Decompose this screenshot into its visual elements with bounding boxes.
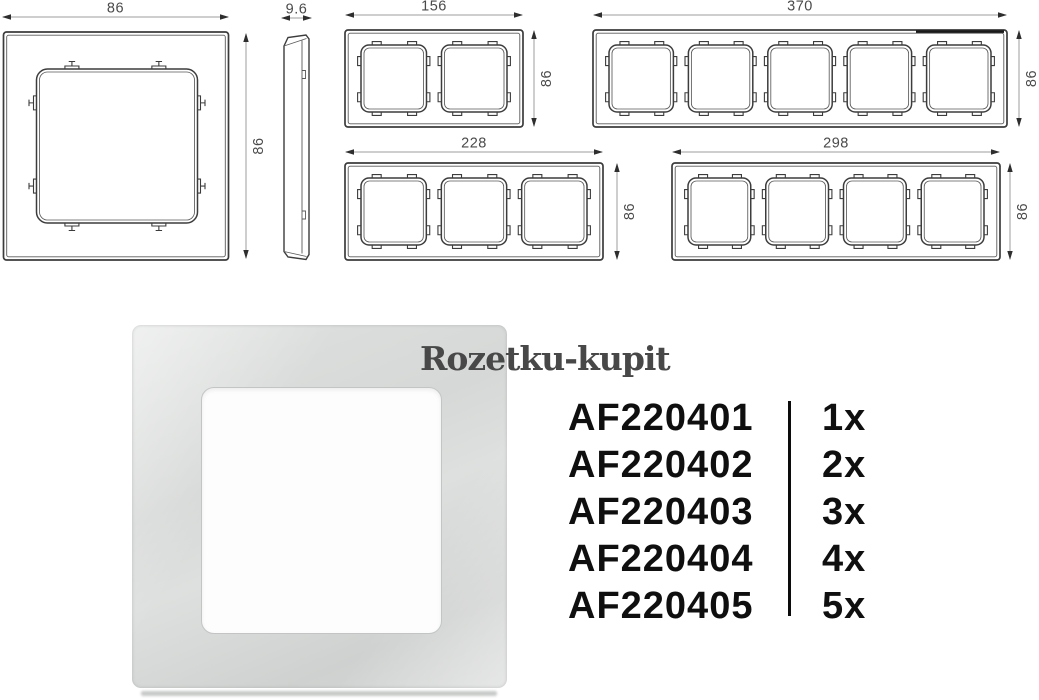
mounting-clip bbox=[923, 57, 926, 66]
table-divider bbox=[788, 401, 791, 616]
mounting-clip bbox=[358, 190, 361, 199]
mounting-clip bbox=[932, 175, 941, 178]
mounting-clip bbox=[427, 226, 430, 235]
product-qty: 3x bbox=[822, 491, 866, 534]
dim-height-frame-1gang: 86 bbox=[251, 137, 267, 154]
mounting-clip bbox=[372, 246, 381, 249]
mounting-clip bbox=[844, 93, 847, 102]
mounting-clip bbox=[568, 175, 577, 178]
mounting-clip bbox=[620, 113, 629, 116]
frame-top-shade bbox=[916, 30, 1004, 33]
mounting-clip bbox=[408, 113, 417, 116]
mounting-clip bbox=[888, 246, 897, 249]
mounting-clip bbox=[840, 226, 843, 235]
mounting-clip bbox=[972, 42, 981, 45]
table-row: AF2204033x bbox=[568, 489, 866, 536]
mounting-clip bbox=[655, 42, 664, 45]
table-row: AF2204011x bbox=[568, 395, 866, 442]
mounting-clip bbox=[685, 57, 688, 66]
mounting-clip bbox=[152, 62, 166, 69]
drawing-side-view: 9.6 bbox=[281, 2, 312, 260]
mounting-clip bbox=[907, 190, 910, 199]
mounting-clip bbox=[568, 246, 577, 249]
mounting-clip bbox=[992, 93, 995, 102]
mounting-clip bbox=[674, 57, 677, 66]
mounting-clip bbox=[620, 42, 629, 45]
mounting-clip bbox=[372, 42, 381, 45]
drawing-frame-1gang: 8686 bbox=[2, 1, 267, 261]
mounting-clip bbox=[699, 246, 708, 249]
dim-height-frame-3gang: 86 bbox=[622, 203, 638, 220]
mounting-clip bbox=[985, 190, 988, 199]
mounting-clip bbox=[508, 57, 511, 66]
table-row: AF2204044x bbox=[568, 536, 866, 583]
mounting-clip bbox=[152, 224, 166, 231]
mounting-clip bbox=[734, 113, 743, 116]
mounting-clip bbox=[358, 226, 361, 235]
mounting-clip bbox=[932, 246, 941, 249]
product-table: AF2204011xAF2204022xAF2204033xAF2204044x… bbox=[568, 395, 866, 630]
dim-depth-side-view: 9.6 bbox=[286, 2, 308, 18]
mounting-clip bbox=[408, 42, 417, 45]
mounting-clip bbox=[858, 42, 867, 45]
mounting-clip bbox=[358, 57, 361, 66]
mounting-clip bbox=[938, 42, 947, 45]
mounting-clip bbox=[488, 175, 497, 178]
mounting-clip bbox=[814, 113, 823, 116]
mounting-clip bbox=[732, 175, 741, 178]
mounting-clip bbox=[762, 226, 765, 235]
mounting-clip bbox=[762, 190, 765, 199]
mounting-clip bbox=[854, 175, 863, 178]
mounting-clip bbox=[453, 175, 462, 178]
product-qty: 1x bbox=[822, 397, 866, 440]
product-qty: 4x bbox=[822, 538, 866, 581]
mounting-clip bbox=[588, 226, 591, 235]
mounting-clip bbox=[29, 96, 36, 110]
mounting-clip bbox=[655, 113, 664, 116]
mounting-clip bbox=[438, 190, 441, 199]
mounting-clip bbox=[606, 57, 609, 66]
mounting-clip bbox=[372, 113, 381, 116]
product-code: AF220401 bbox=[568, 397, 789, 440]
mounting-clip bbox=[438, 226, 441, 235]
mounting-clip bbox=[358, 93, 361, 102]
mounting-clip bbox=[734, 42, 743, 45]
mounting-clip bbox=[427, 57, 430, 66]
mounting-clip bbox=[699, 113, 708, 116]
mounting-clip bbox=[29, 179, 36, 193]
table-row: AF2204022x bbox=[568, 442, 866, 489]
mounting-clip bbox=[907, 226, 910, 235]
product-code: AF220405 bbox=[568, 585, 789, 628]
mounting-clip bbox=[764, 93, 767, 102]
mounting-clip bbox=[438, 93, 441, 102]
mounting-clip bbox=[992, 57, 995, 66]
mounting-clip bbox=[65, 224, 79, 231]
mounting-clip bbox=[751, 226, 754, 235]
table-row: AF2204055x bbox=[568, 583, 866, 630]
mounting-clip bbox=[814, 42, 823, 45]
mounting-clip bbox=[938, 113, 947, 116]
mounting-clip bbox=[751, 190, 754, 199]
product-sheet: 8686156863708622886298869.6 Rozetku-kupi… bbox=[0, 0, 1039, 700]
photo-shadow bbox=[141, 691, 497, 696]
mounting-clip bbox=[776, 175, 785, 178]
mounting-clip bbox=[985, 226, 988, 235]
mounting-clip bbox=[779, 113, 788, 116]
drawing-frame-5gang: 37086 bbox=[593, 0, 1039, 127]
mounting-clip bbox=[407, 246, 416, 249]
mounting-clip bbox=[453, 42, 462, 45]
mounting-clip bbox=[65, 62, 79, 69]
mounting-clip bbox=[858, 113, 867, 116]
mounting-clip bbox=[966, 175, 975, 178]
mounting-clip bbox=[438, 57, 441, 66]
watermark-logo: Rozetku-kupit bbox=[420, 339, 670, 378]
mounting-clip bbox=[833, 57, 836, 66]
mounting-clip bbox=[829, 190, 832, 199]
product-qty: 2x bbox=[822, 444, 866, 487]
dim-height-frame-5gang: 86 bbox=[1024, 70, 1039, 87]
mounting-clip bbox=[699, 42, 708, 45]
mounting-clip bbox=[488, 113, 497, 116]
product-photo bbox=[132, 325, 507, 688]
mounting-clip bbox=[699, 175, 708, 178]
mounting-clip bbox=[918, 226, 921, 235]
photo-frame-opening bbox=[201, 387, 442, 634]
dim-width-frame-5gang: 370 bbox=[787, 0, 813, 15]
mounting-clip bbox=[810, 246, 819, 249]
mounting-clip bbox=[488, 246, 497, 249]
mounting-clip bbox=[407, 175, 416, 178]
mounting-clip bbox=[507, 226, 510, 235]
mounting-clip bbox=[810, 175, 819, 178]
mounting-clip bbox=[488, 42, 497, 45]
mounting-clip bbox=[833, 93, 836, 102]
mounting-clip bbox=[972, 113, 981, 116]
mounting-clip bbox=[372, 175, 381, 178]
mounting-clip bbox=[606, 93, 609, 102]
drawing-frame-4gang: 29886 bbox=[672, 136, 1031, 261]
mounting-clip bbox=[685, 93, 688, 102]
mounting-clip bbox=[732, 246, 741, 249]
mounting-clip bbox=[888, 175, 897, 178]
mounting-clip bbox=[840, 190, 843, 199]
mounting-clip bbox=[508, 93, 511, 102]
technical-drawings: 8686156863708622886298869.6 bbox=[0, 0, 1039, 300]
mounting-clip bbox=[674, 93, 677, 102]
mounting-clip bbox=[533, 175, 542, 178]
mounting-clip bbox=[854, 246, 863, 249]
mounting-clip bbox=[453, 113, 462, 116]
mounting-clip bbox=[753, 57, 756, 66]
mounting-clip bbox=[912, 93, 915, 102]
drawing-frame-3gang: 22886 bbox=[345, 136, 638, 261]
dim-width-frame-4gang: 298 bbox=[823, 136, 849, 152]
product-code: AF220402 bbox=[568, 444, 789, 487]
mounting-clip bbox=[518, 190, 521, 199]
mounting-clip bbox=[776, 246, 785, 249]
dim-width-frame-3gang: 228 bbox=[461, 136, 487, 152]
mounting-clip bbox=[923, 93, 926, 102]
mounting-clip bbox=[829, 226, 832, 235]
mounting-clip bbox=[427, 190, 430, 199]
mounting-clip bbox=[779, 42, 788, 45]
mounting-clip bbox=[685, 226, 688, 235]
mounting-clip bbox=[507, 190, 510, 199]
product-qty: 5x bbox=[822, 585, 866, 628]
mounting-clip bbox=[518, 226, 521, 235]
dim-width-frame-1gang: 86 bbox=[107, 1, 124, 17]
mounting-clip bbox=[912, 57, 915, 66]
mounting-clip bbox=[533, 246, 542, 249]
mounting-clip bbox=[893, 42, 902, 45]
mounting-clip bbox=[966, 246, 975, 249]
mounting-clip bbox=[918, 190, 921, 199]
product-code: AF220403 bbox=[568, 491, 789, 534]
mounting-clip bbox=[844, 57, 847, 66]
mounting-clip bbox=[588, 190, 591, 199]
mounting-clip bbox=[753, 93, 756, 102]
product-code: AF220404 bbox=[568, 538, 789, 581]
mounting-clip bbox=[685, 190, 688, 199]
mounting-clip bbox=[198, 179, 205, 193]
mounting-clip bbox=[764, 57, 767, 66]
dim-width-frame-2gang: 156 bbox=[421, 0, 447, 15]
mounting-clip bbox=[453, 246, 462, 249]
mounting-clip bbox=[198, 96, 205, 110]
mounting-clip bbox=[893, 113, 902, 116]
dim-height-frame-2gang: 86 bbox=[539, 70, 555, 87]
drawing-frame-2gang: 15686 bbox=[345, 0, 555, 127]
mounting-clip bbox=[427, 93, 430, 102]
dim-height-frame-4gang: 86 bbox=[1015, 203, 1031, 220]
